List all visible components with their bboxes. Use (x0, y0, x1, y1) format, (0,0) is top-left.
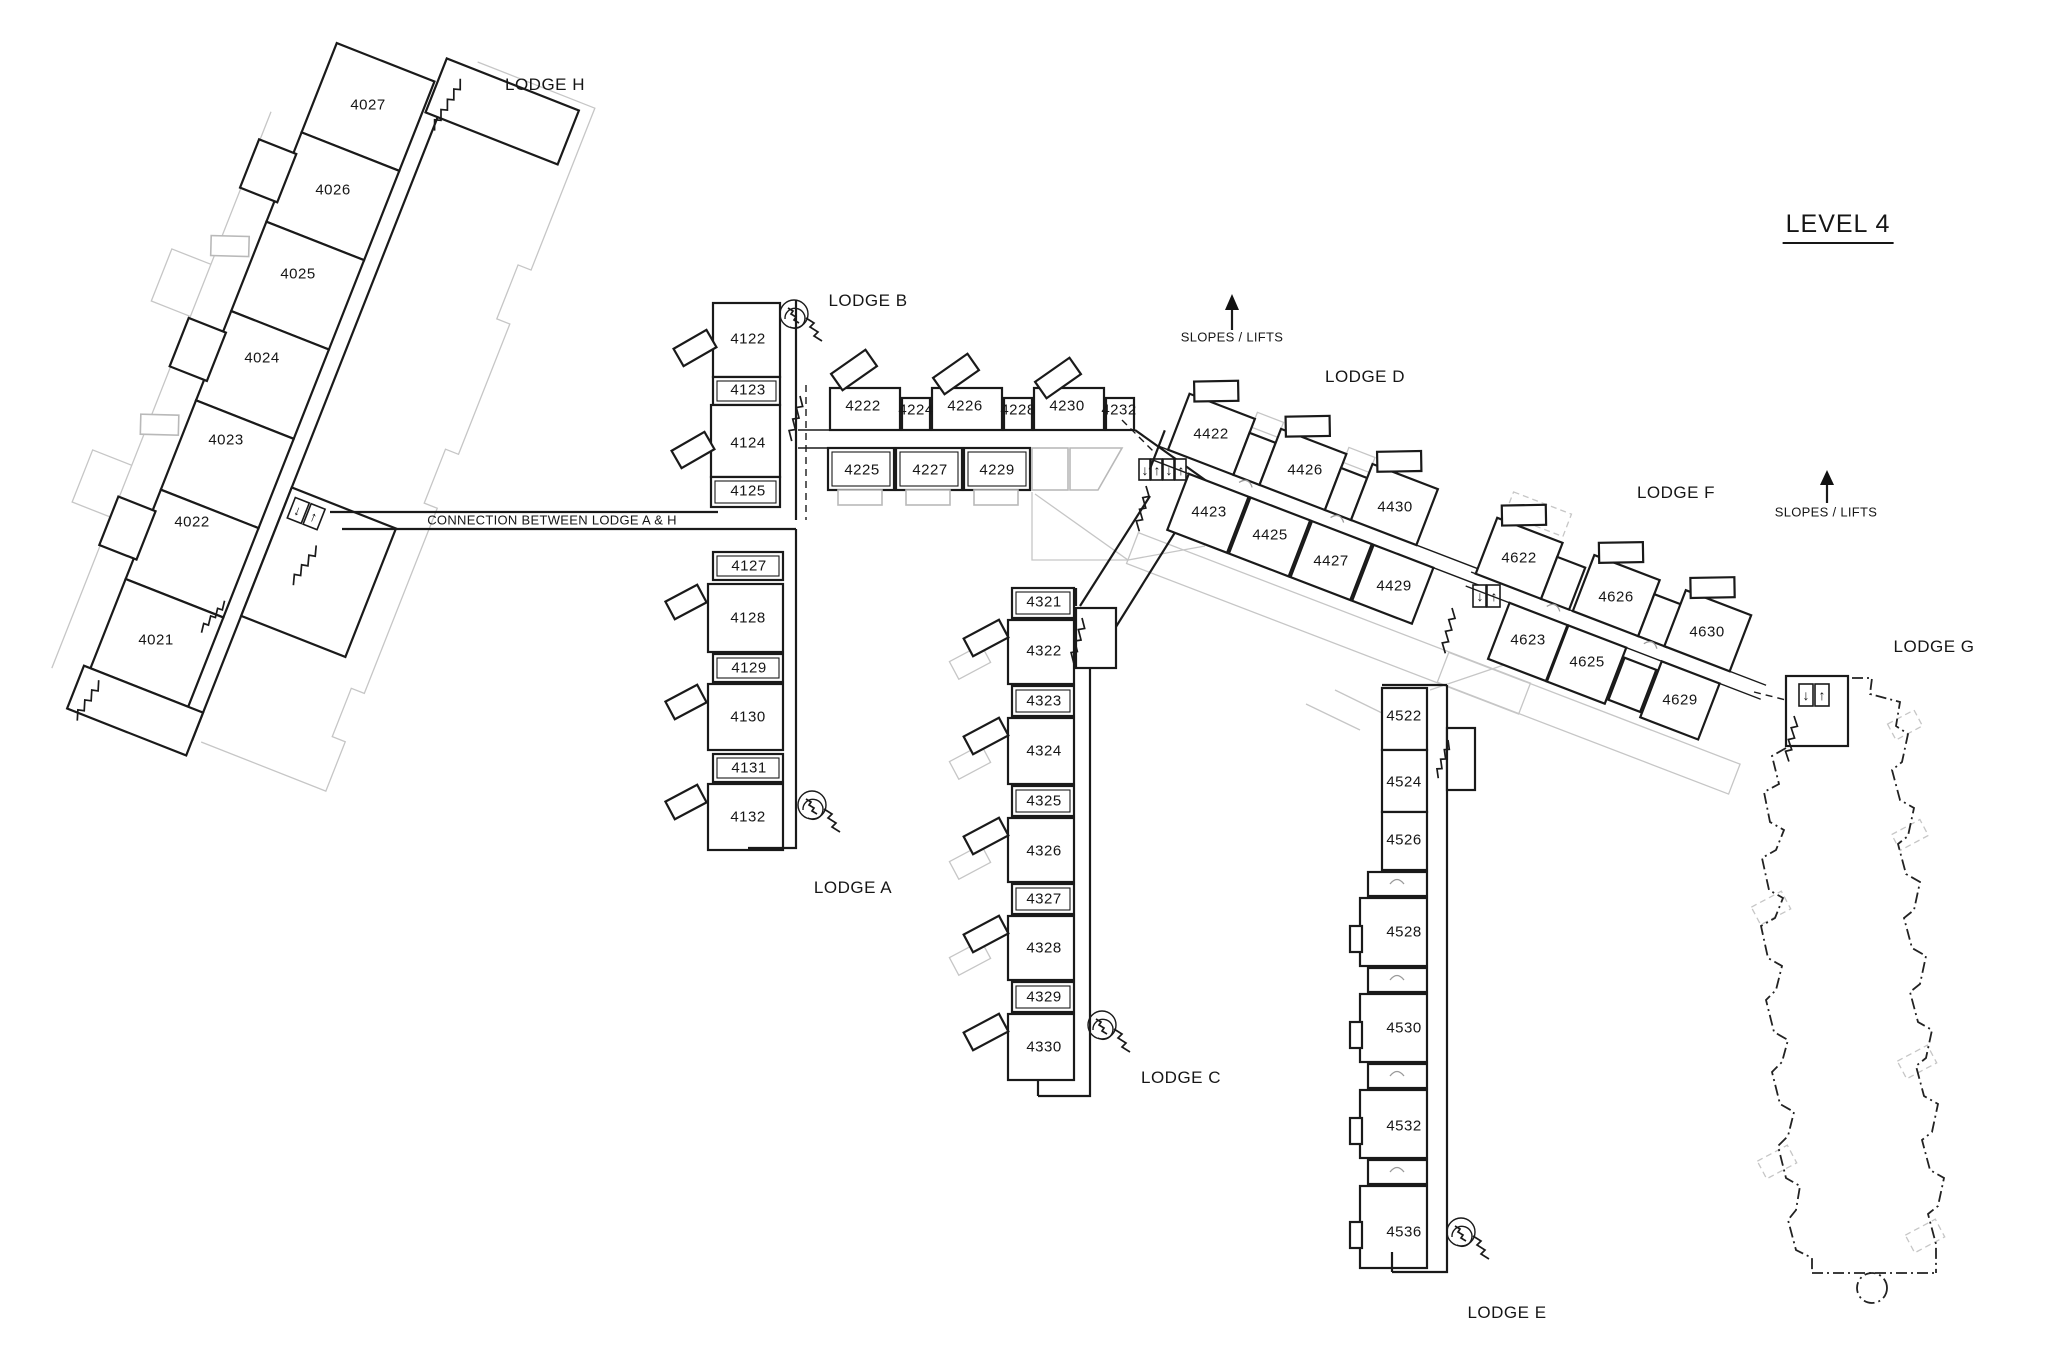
lodge-e-walls (1350, 685, 1489, 1272)
lodge-a-walls (665, 529, 840, 850)
lodge-f-walls (1444, 488, 1798, 755)
elevator-down-glyph: ↓ (1803, 687, 1810, 703)
floorplan-svg: ↓ ↑ (0, 0, 2048, 1365)
slopes-lifts-arrow (1225, 294, 1239, 330)
spiral-stairs-icon (1447, 1218, 1489, 1259)
elevator-up-glyph: ↑ (1154, 462, 1161, 478)
slopes-lifts-arrow (1820, 470, 1834, 503)
connection-corridor (330, 512, 796, 529)
elevator-down-glyph: ↓ (1166, 462, 1173, 478)
lodge-b-walls (672, 300, 1135, 520)
lodge-g-walls: ↓ ↑ (1754, 676, 1944, 1303)
stairs-icon (1121, 486, 1164, 531)
elevator-down-glyph: ↓ (1142, 462, 1149, 478)
spiral-stairs-icon (1088, 1011, 1130, 1052)
lodge-h-walls: ↓ ↑ (28, 2, 579, 810)
lodge-d-walls (1132, 363, 1529, 646)
elevator-up-glyph: ↑ (1819, 687, 1826, 703)
spiral-stairs-icon (780, 300, 822, 341)
spiral-stairs-icon (798, 791, 840, 832)
lodge-c-walls (964, 588, 1130, 1096)
elevator-icon: ↓ ↑ (1473, 585, 1500, 607)
floorplan-level4: ↓ ↑ (0, 0, 2048, 1365)
